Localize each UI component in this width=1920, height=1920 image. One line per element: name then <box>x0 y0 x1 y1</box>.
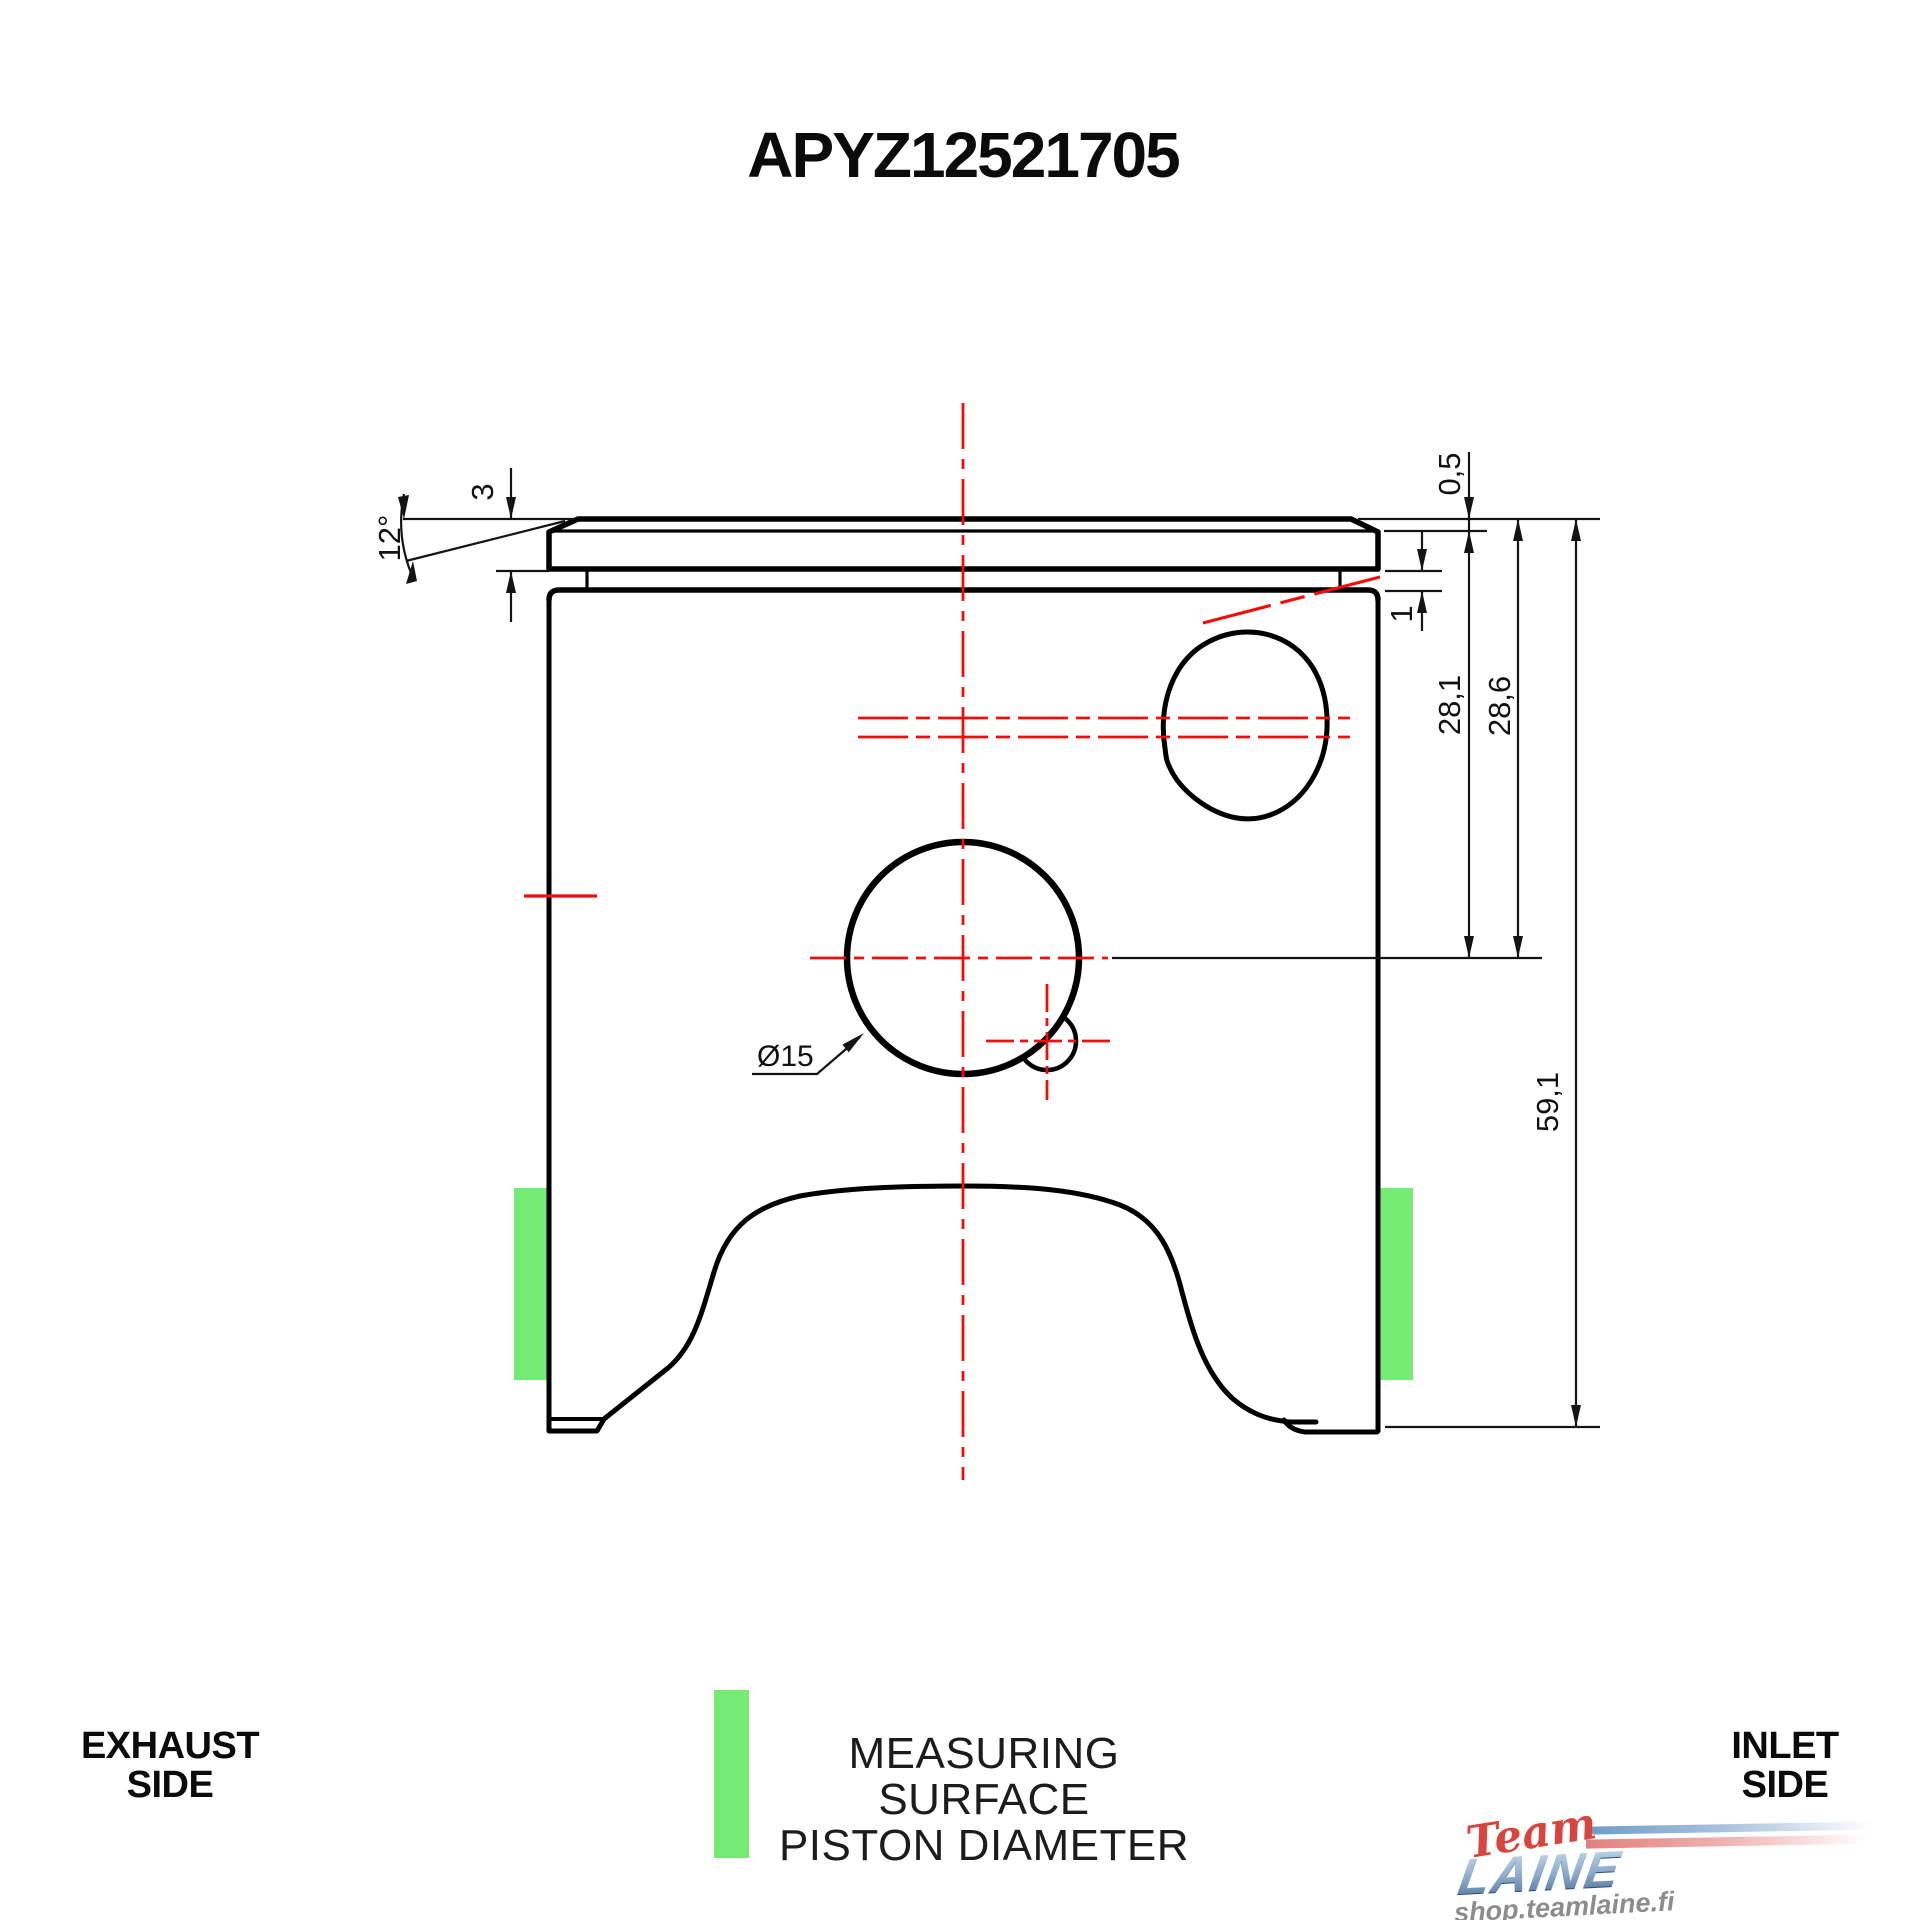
measuring-surface-right <box>1380 1188 1413 1380</box>
skirt-arch <box>604 1186 1316 1422</box>
dim-label-total-length: 59,1 <box>1530 1072 1566 1132</box>
port-window <box>1163 632 1327 819</box>
dim-label-pin-height-max: 28,6 <box>1482 676 1518 736</box>
taper-line-12deg <box>406 521 565 561</box>
dim-label-top-land: 3 <box>465 483 501 500</box>
legend-measuring-line2: PISTON DIAMETER <box>774 1823 1194 1869</box>
drawing-page: APYZ12521705 <box>0 0 1920 1920</box>
legend-inlet-line1: INLET <box>1700 1727 1870 1766</box>
legend-measuring-line1: MEASURING SURFACE <box>774 1731 1194 1823</box>
measuring-surface-left <box>514 1188 547 1380</box>
legend-exhaust-line2: SIDE <box>80 1766 260 1805</box>
legend-green-swatch <box>714 1690 749 1858</box>
dim-label-crown-step: 0,5 <box>1432 452 1468 495</box>
dim-label-pin-height-min: 28,1 <box>1432 675 1468 735</box>
piston-technical-drawing <box>0 0 1920 1920</box>
legend-inlet-side: INLET SIDE <box>1700 1727 1870 1805</box>
dim-label-ring-groove: 1 <box>1384 605 1420 622</box>
legend-exhaust-line1: EXHAUST <box>80 1727 260 1766</box>
team-laine-logo: Team LAINE shop.teamlaine.fi <box>1430 1800 1910 1920</box>
dim-label-pin-bore: Ø15 <box>757 1040 814 1074</box>
dim-label-taper-angle: 12° <box>372 515 408 562</box>
ring-groove-red-leader <box>1203 577 1380 623</box>
legend-measuring-surface: MEASURING SURFACE PISTON DIAMETER <box>774 1731 1194 1869</box>
legend-exhaust-side: EXHAUST SIDE <box>80 1727 260 1805</box>
logo-stripe-blue <box>1588 1821 1888 1834</box>
logo-stripe-red <box>1586 1834 1882 1848</box>
